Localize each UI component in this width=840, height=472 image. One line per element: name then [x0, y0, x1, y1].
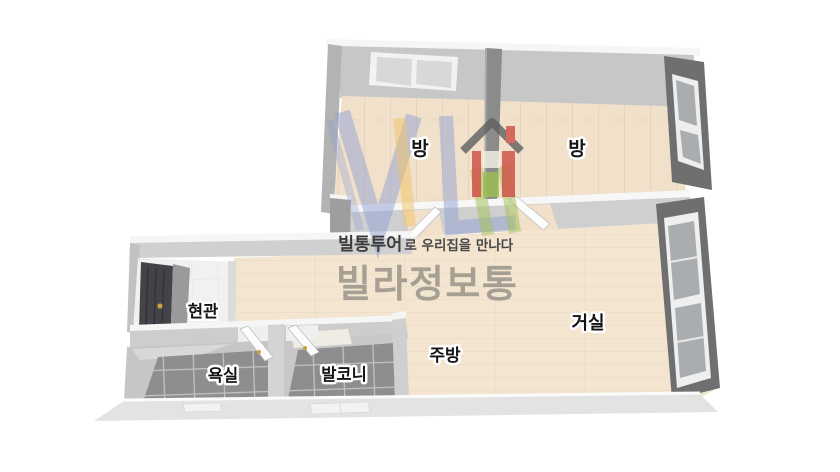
tagline-brand: 빌통투어 — [338, 235, 402, 255]
house-chimney — [506, 126, 515, 143]
label-entrance: 현관 — [188, 302, 218, 321]
window-top-bedroom-left — [369, 52, 458, 91]
tagline-rest: 로 우리집을 만나다 — [404, 237, 513, 254]
bathroom-door-handle — [257, 350, 261, 354]
label-bedroom-right: 방 — [568, 138, 586, 160]
bath-balcony-row — [124, 311, 409, 401]
label-living-room: 거실 — [571, 313, 604, 334]
label-kitchen: 주방 — [429, 346, 461, 366]
label-bedroom-left: 방 — [411, 138, 429, 160]
watermark-tagline: 빌통투어로 우리집을 만나다 — [338, 235, 514, 255]
window-pane — [416, 60, 452, 88]
floorplan-canvas: 빌통투어로 우리집을 만나다 빌라정보통 방 방 현관 욕실 발코니 주방 거실 — [0, 0, 840, 472]
bottom-wall-vent — [183, 403, 222, 412]
house-window — [483, 151, 500, 168]
window-pane — [676, 80, 697, 126]
house-left-bar — [472, 151, 481, 197]
floorplan-image: 빌통투어로 우리집을 만나다 빌라정보통 방 방 현관 욕실 발코니 주방 거실 — [0, 0, 840, 472]
bathroom — [124, 341, 272, 401]
watermark-text: 빌통투어로 우리집을 만나다 빌라정보통 — [336, 235, 518, 306]
label-balcony: 발코니 — [321, 365, 367, 384]
entrance-threshold — [228, 261, 236, 329]
watermark-brand-name: 빌라정보통 — [336, 262, 518, 306]
window-pane — [376, 57, 412, 86]
label-bathroom: 욕실 — [208, 366, 238, 385]
balcony-door-handle — [303, 346, 307, 350]
house-right-block — [502, 151, 515, 197]
front-door-entrance — [139, 262, 190, 329]
house-green-block — [483, 172, 499, 197]
door-handle — [157, 303, 162, 308]
bath-balcony-divider-wall — [268, 324, 284, 401]
